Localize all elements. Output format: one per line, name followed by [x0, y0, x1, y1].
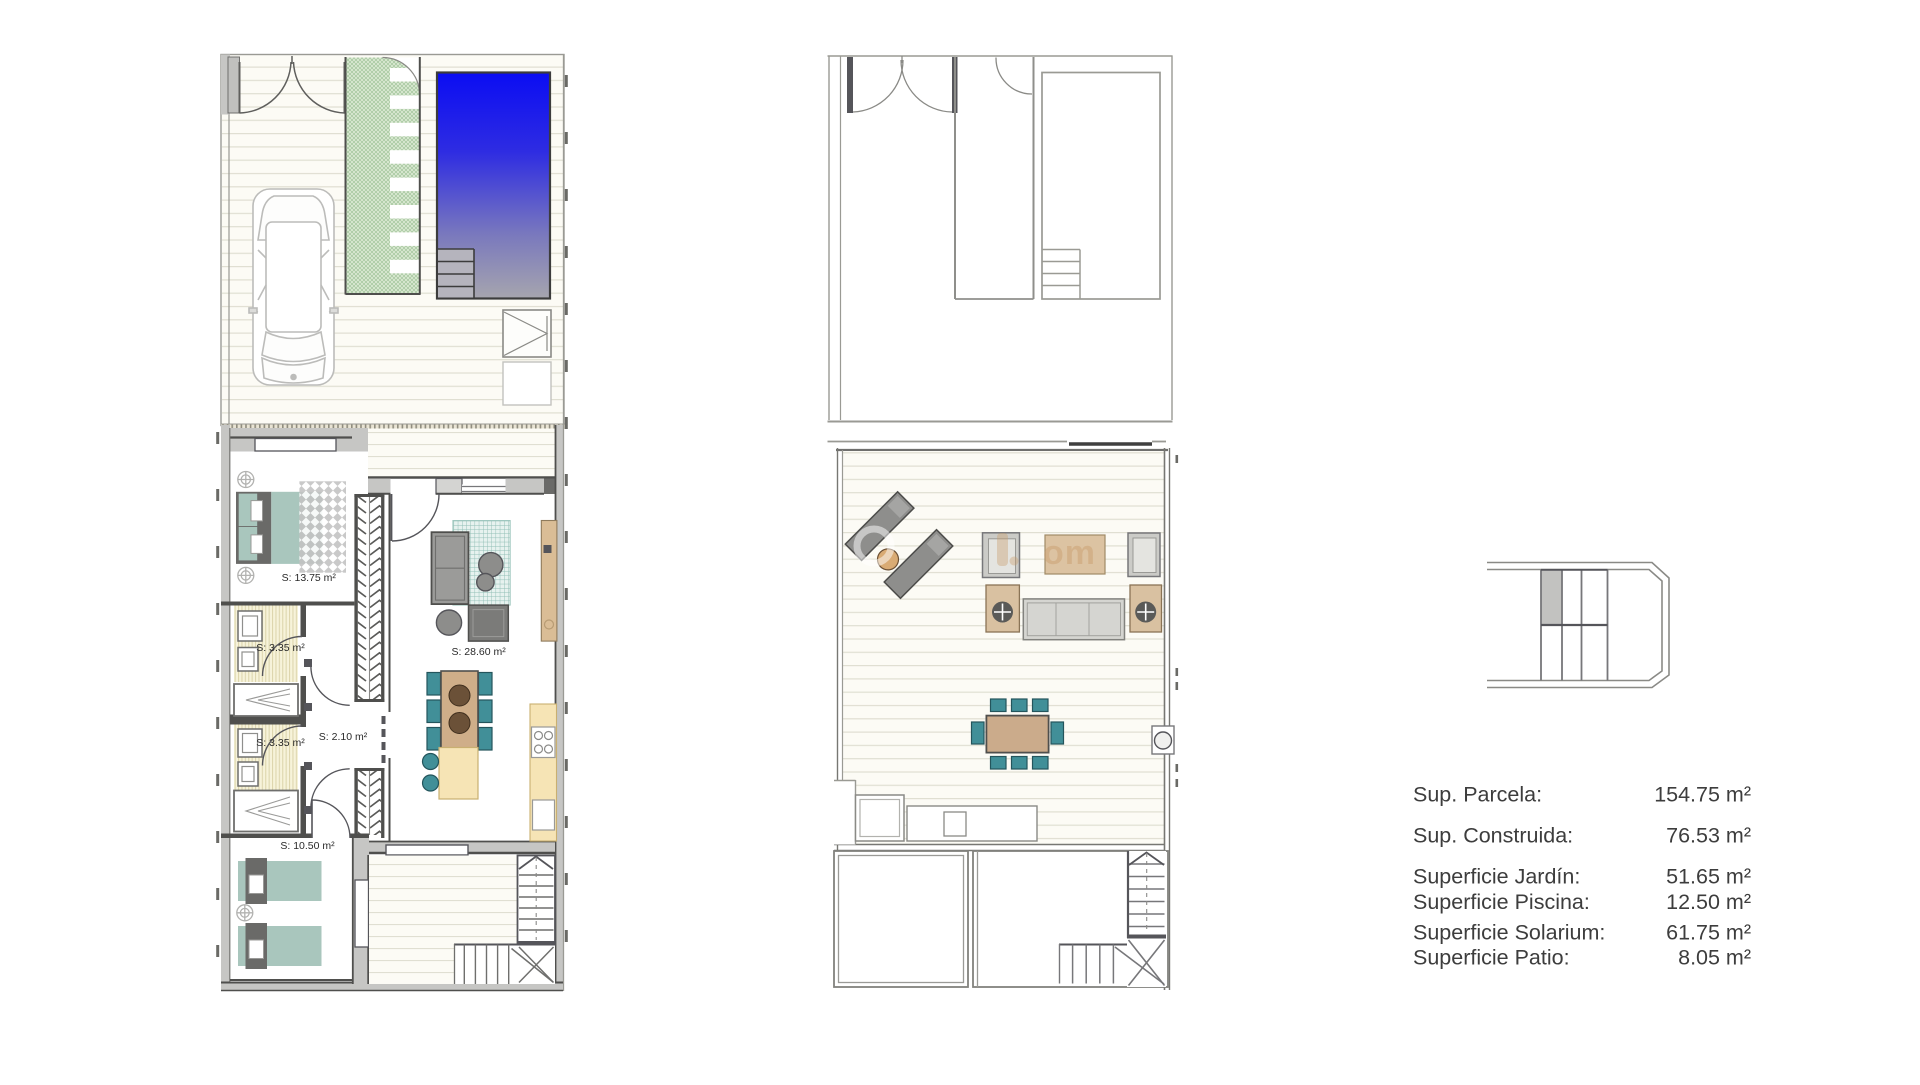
svg-text:61.75 m²: 61.75 m² — [1666, 921, 1751, 945]
svg-text:51.65 m²: 51.65 m² — [1666, 865, 1751, 889]
svg-text:S: 13.75 m²: S: 13.75 m² — [282, 572, 337, 584]
svg-text:154.75 m²: 154.75 m² — [1654, 783, 1751, 807]
svg-text:Sup. Parcela:: Sup. Parcela: — [1413, 783, 1542, 807]
svg-text:Superficie Solarium:: Superficie Solarium: — [1413, 921, 1605, 945]
svg-text:S: 2.10 m²: S: 2.10 m² — [319, 731, 368, 743]
svg-text:S: 3.35 m²: S: 3.35 m² — [256, 642, 305, 654]
svg-text:12.50 m²: 12.50 m² — [1666, 890, 1751, 914]
svg-text:S: 3.35 m²: S: 3.35 m² — [256, 737, 305, 749]
svg-text:Superficie Jardín:: Superficie Jardín: — [1413, 865, 1580, 889]
svg-text:S: 10.50 m²: S: 10.50 m² — [280, 840, 335, 852]
svg-text:76.53 m²: 76.53 m² — [1666, 824, 1751, 848]
svg-text:Superficie Patio:: Superficie Patio: — [1413, 946, 1570, 970]
svg-text:S: 28.60 m²: S: 28.60 m² — [451, 646, 506, 658]
svg-text:om: om — [1043, 534, 1096, 572]
svg-text:Sup. Construida:: Sup. Construida: — [1413, 824, 1573, 848]
svg-text:Superficie Piscina:: Superficie Piscina: — [1413, 890, 1590, 914]
svg-text:8.05 m²: 8.05 m² — [1678, 946, 1751, 970]
